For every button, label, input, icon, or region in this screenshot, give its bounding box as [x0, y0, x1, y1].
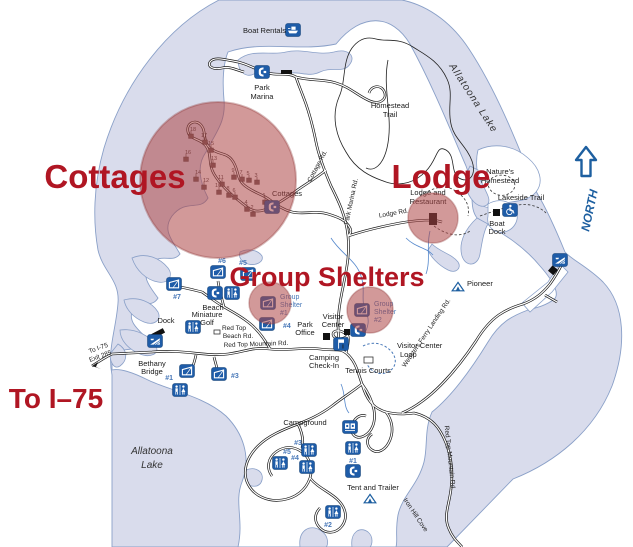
camp-store-icon — [343, 421, 358, 434]
allatoona-lake-bottom-label-2: Lake — [141, 460, 163, 471]
camp-restroom-5-icon — [273, 457, 288, 470]
campground-label: Campground — [283, 418, 326, 427]
camp-1-number: #1 — [349, 458, 357, 465]
park-office-building — [323, 333, 330, 340]
north-compass: NORTH — [576, 147, 601, 233]
group-shelters-title: Group Shelters — [229, 262, 424, 292]
camp-3-number: #3 — [294, 440, 302, 447]
north-label: NORTH — [578, 188, 601, 233]
tent-trailer-label: Tent and Trailer — [347, 483, 399, 492]
lodge-wheelchair-icon — [503, 204, 518, 217]
shelter-1-icon — [180, 365, 195, 378]
camp-2-number: #2 — [324, 522, 332, 529]
map-canvas: i — [0, 0, 633, 547]
allatoona-lake-bottom-label-1: Allatoona — [130, 446, 173, 457]
park-marina-label-2: Marina — [251, 92, 275, 101]
camp-restroom-3-icon — [302, 444, 317, 457]
pioneer-label: Pioneer — [467, 279, 493, 288]
park-office-label-2: Office — [295, 328, 314, 337]
north-arrow-icon — [576, 147, 596, 176]
shelter-1-number: #1 — [165, 375, 173, 382]
boat-rentals-icon — [286, 24, 301, 37]
boat-rentals-label: Boat Rentals — [243, 26, 286, 35]
shelter-7-number: #7 — [173, 294, 181, 301]
to-i75-title: To I–75 — [9, 383, 103, 414]
lodge-highlight-circle — [408, 193, 458, 243]
camp-restroom-2-icon — [326, 506, 341, 519]
camp-restroom-1-icon — [346, 442, 361, 455]
tennis-courts-label: Tennis Courts — [345, 366, 391, 375]
park-marina-label-1: Park — [254, 83, 270, 92]
camp-5-number: #5 — [283, 449, 291, 456]
shelter-6-icon — [211, 266, 226, 279]
group-shelter-2-highlight-circle — [347, 287, 393, 333]
cottages-title: Cottages — [44, 158, 185, 195]
marina-dock-structure — [281, 70, 292, 74]
shelter-6-number: #6 — [218, 258, 226, 265]
beach-phone-icon — [208, 287, 223, 300]
camp-restroom-4-icon — [300, 461, 315, 474]
homestead-trail-label-2: Trail — [383, 110, 398, 119]
boat-dock-label-2: Dock — [488, 227, 505, 236]
camping-check-in-label-2: Check-In — [309, 361, 339, 370]
visitor-center-icon — [334, 338, 349, 351]
miniature-golf-label-2: Golf — [200, 318, 215, 327]
boat-dock-structure — [493, 209, 500, 216]
shelter-7-icon — [167, 278, 182, 291]
marina-phone-icon — [255, 66, 270, 79]
visitor-center-building — [344, 329, 350, 335]
visitor-center-label-2: Center — [322, 320, 345, 329]
park-map: i — [0, 0, 633, 547]
bethany-bridge-label-2: Bridge — [141, 367, 163, 376]
shelter-3-icon — [212, 368, 227, 381]
camp-4-number: #4 — [291, 455, 299, 462]
east-boat-ramp-icon — [553, 254, 568, 267]
shelter-3-number: #3 — [231, 373, 239, 380]
lakeside-trail-label: Lakeside Trail — [498, 193, 545, 202]
red-top-beach-rd-label-2: Beach Rd. — [223, 333, 254, 340]
dock-label: Dock — [157, 316, 174, 325]
homestead-trail-label-1: Homestead — [371, 101, 409, 110]
red-top-beach-rd-label-1: Red Top — [222, 325, 246, 332]
camp-phone-icon — [346, 465, 361, 478]
lodge-title: Lodge — [392, 158, 491, 195]
shelter-4-number: #4 — [283, 323, 291, 330]
minigolf-restroom-icon — [186, 321, 201, 334]
dock-boat-ramp-icon — [148, 335, 163, 348]
bridge-restroom-icon — [173, 384, 188, 397]
i75-arrow — [92, 362, 101, 369]
